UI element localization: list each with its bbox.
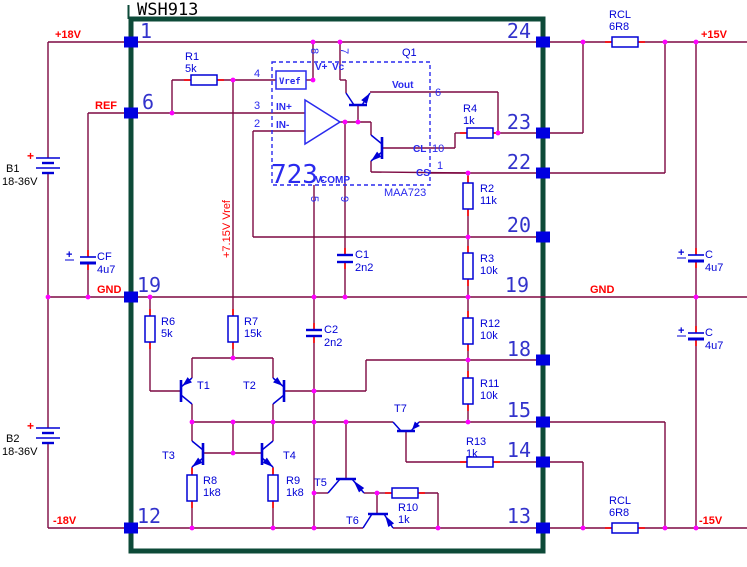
label-r12: R12	[480, 318, 500, 330]
label-5: 5	[308, 196, 320, 202]
label-r3: R3	[480, 253, 494, 265]
pin-pad-23	[536, 128, 550, 139]
label-b2: B2	[6, 433, 19, 445]
label-r7: R7	[244, 316, 258, 328]
label-18-36v: 18-36V	[2, 446, 38, 458]
label-t1: T1	[197, 380, 210, 392]
label-4u7: 4u7	[705, 262, 723, 274]
junction-dot	[344, 420, 349, 425]
junction-dot	[343, 295, 348, 300]
label--15v: -15V	[699, 515, 723, 527]
label-vout: Vout	[392, 80, 414, 91]
label-11k: 11k	[480, 195, 497, 207]
resistor-RCL	[612, 37, 638, 47]
label-q1: Q1	[402, 47, 417, 59]
label-18: 18	[507, 337, 531, 361]
label-r6: R6	[161, 316, 175, 328]
label-t5: T5	[314, 477, 327, 489]
label-6: 6	[142, 90, 154, 114]
junction-dot	[312, 491, 317, 496]
plus-sign: +	[27, 419, 34, 433]
pin-pad-15	[536, 417, 550, 428]
junction-dot	[663, 526, 668, 531]
label-15: 15	[507, 398, 531, 422]
plus-sign: +	[66, 249, 72, 261]
plus-sign: +	[678, 247, 684, 259]
junction-dot	[356, 120, 361, 125]
label-b1: B1	[6, 163, 19, 175]
pin-pad-12	[124, 523, 138, 534]
label-r8: R8	[203, 475, 217, 487]
label-gnd: GND	[97, 284, 122, 296]
junction-dot	[311, 40, 316, 45]
label-13: 13	[507, 504, 531, 528]
transistor-T1	[181, 395, 192, 404]
label-6: 6	[435, 87, 441, 99]
label-cl: CL	[413, 144, 426, 155]
label-1k: 1k	[398, 514, 410, 526]
label-10k: 10k	[480, 265, 498, 277]
transistor-T4	[262, 441, 273, 450]
transistor-Q1	[346, 93, 354, 105]
label-ref: REF	[95, 100, 117, 112]
pin-pad-20	[536, 232, 550, 243]
junction-dot	[663, 40, 668, 45]
label-8: 8	[308, 48, 320, 54]
label-18-36v: 18-36V	[2, 176, 38, 188]
junction-dot	[338, 40, 343, 45]
label-c1: C1	[355, 249, 369, 261]
label-cs: CS	[416, 168, 430, 179]
pin-pad-1	[124, 37, 138, 48]
label-9: 9	[338, 196, 350, 202]
plus-sign: +	[678, 325, 684, 337]
label-maa723: MAA723	[384, 187, 426, 199]
junction-dot	[466, 171, 471, 176]
label-wsh913: WSH913	[137, 0, 198, 20]
junction-dot	[466, 235, 471, 240]
label-t4: T4	[283, 450, 296, 462]
transistor-T6	[363, 514, 372, 528]
label-r1: R1	[185, 51, 199, 63]
label-r4: R4	[463, 103, 477, 115]
junction-dot	[190, 420, 195, 425]
junction-dot	[312, 420, 317, 425]
junction-dot	[581, 40, 586, 45]
label-r10: R10	[398, 502, 418, 514]
resistor-R3	[463, 253, 473, 279]
transistor-arrow	[385, 516, 394, 527]
resistor-R8	[187, 475, 197, 501]
junction-dot	[271, 420, 276, 425]
resistor-R1	[191, 75, 217, 85]
junction-dot	[466, 420, 471, 425]
label-6r8: 6R8	[609, 21, 629, 33]
label-10: 10	[432, 143, 444, 155]
junction-dot	[694, 526, 699, 531]
label-1: 1	[437, 160, 443, 172]
transistor-T7	[393, 422, 401, 431]
pin-pad-22	[536, 168, 550, 179]
label-4: 4	[254, 68, 260, 80]
label-20: 20	[507, 213, 531, 237]
junction-dot	[190, 526, 195, 531]
label-rcl: RCL	[609, 495, 631, 507]
junction-dot	[312, 295, 317, 300]
junction-dot	[231, 451, 236, 456]
label-r13: R13	[466, 436, 486, 448]
pin-pad-19	[124, 292, 138, 303]
pin-pad-6	[124, 108, 138, 119]
junction-dot	[581, 526, 586, 531]
label-+715vvref: +7.15V Vref	[221, 199, 233, 258]
label-comp: COMP	[320, 175, 350, 186]
label-6r8: 6R8	[609, 507, 629, 519]
pin-pad-24	[536, 37, 550, 48]
label-3: 3	[254, 100, 260, 112]
label-19: 19	[137, 273, 161, 297]
label-cf: CF	[97, 251, 112, 263]
transistor-Tcl	[371, 135, 382, 144]
label-2n2: 2n2	[355, 262, 373, 274]
junction-dot	[312, 526, 317, 531]
junction-dot	[466, 295, 471, 300]
label-22: 22	[507, 150, 531, 174]
label-7: 7	[338, 48, 350, 54]
label-v+: V+	[315, 62, 328, 73]
label-15k: 15k	[244, 328, 262, 340]
label-t6: T6	[346, 515, 359, 527]
junction-dot	[496, 131, 501, 136]
resistor-R9	[268, 475, 278, 501]
junction-dot	[170, 111, 175, 116]
label-723: 723	[271, 160, 318, 190]
label-gnd: GND	[590, 284, 615, 296]
junction-dot	[231, 420, 236, 425]
resistor-R12	[463, 318, 473, 344]
junction-dot	[694, 40, 699, 45]
label-t7: T7	[394, 403, 407, 415]
label-in+: IN+	[276, 102, 292, 113]
label-c2: C2	[324, 324, 338, 336]
resistor-R10	[392, 488, 418, 498]
transistor-T3	[192, 441, 203, 450]
transistor-T2	[273, 395, 284, 404]
label-24: 24	[507, 19, 531, 43]
junction-dot	[231, 356, 236, 361]
label-1k: 1k	[466, 448, 478, 460]
junction-dot	[466, 358, 471, 363]
label-2: 2	[254, 118, 260, 130]
transistor-T5	[328, 479, 340, 493]
pin-pad-18	[536, 355, 550, 366]
resistor-RCL2	[612, 523, 638, 533]
junction-dot	[311, 78, 316, 83]
pin-pad-13	[536, 523, 550, 534]
junction-dot	[343, 120, 348, 125]
label-+15v: +15V	[701, 29, 728, 41]
label-in-: IN-	[276, 120, 289, 131]
resistor-R11	[463, 378, 473, 404]
label-r2: R2	[480, 183, 494, 195]
opamp-symbol	[305, 100, 340, 144]
circuit-schematic: Vref+++++WSH913+18VREFGND-18VGND+15V-15V…	[0, 0, 747, 567]
label-2n2: 2n2	[324, 337, 342, 349]
label-r11: R11	[480, 378, 499, 390]
junction-dot	[436, 526, 441, 531]
resistor-R2	[463, 183, 473, 209]
junction-dot	[375, 491, 380, 496]
junction-dot	[694, 295, 699, 300]
label-c: C	[705, 249, 713, 261]
label-23: 23	[507, 110, 531, 134]
label-c: C	[705, 327, 713, 339]
label-r9: R9	[286, 475, 300, 487]
label-5k: 5k	[161, 328, 173, 340]
junction-dot	[312, 389, 317, 394]
resistor-R4	[467, 128, 493, 138]
label-10k: 10k	[480, 390, 498, 402]
vref-block-label: Vref	[279, 77, 301, 87]
label-+18v: +18V	[55, 29, 82, 41]
label-t2: T2	[243, 380, 256, 392]
label-5k: 5k	[185, 63, 197, 75]
label-10k: 10k	[480, 330, 498, 342]
resistor-R7	[228, 316, 238, 342]
label-rcl: RCL	[609, 9, 631, 21]
plus-sign: +	[27, 149, 34, 163]
label-14: 14	[507, 438, 531, 462]
label-1k8: 1k8	[203, 487, 221, 499]
junction-dot	[231, 78, 236, 83]
resistor-R6	[145, 316, 155, 342]
transistor-arrow	[361, 93, 370, 104]
junction-dot	[271, 526, 276, 531]
label-19: 19	[505, 273, 529, 297]
label-vc: Vc	[332, 62, 345, 73]
schematic-page: Vref+++++WSH913+18VREFGND-18VGND+15V-15V…	[0, 0, 747, 567]
junction-dot	[86, 295, 91, 300]
label-1k: 1k	[463, 115, 475, 127]
label-t3: T3	[162, 450, 175, 462]
junction-dot	[46, 295, 51, 300]
label--18v: -18V	[53, 515, 77, 527]
pin-pad-14	[536, 457, 550, 468]
label-4u7: 4u7	[705, 340, 723, 352]
label-1: 1	[140, 19, 152, 43]
label-12: 12	[137, 504, 161, 528]
label-4u7: 4u7	[97, 264, 115, 276]
label-1k8: 1k8	[286, 487, 304, 499]
